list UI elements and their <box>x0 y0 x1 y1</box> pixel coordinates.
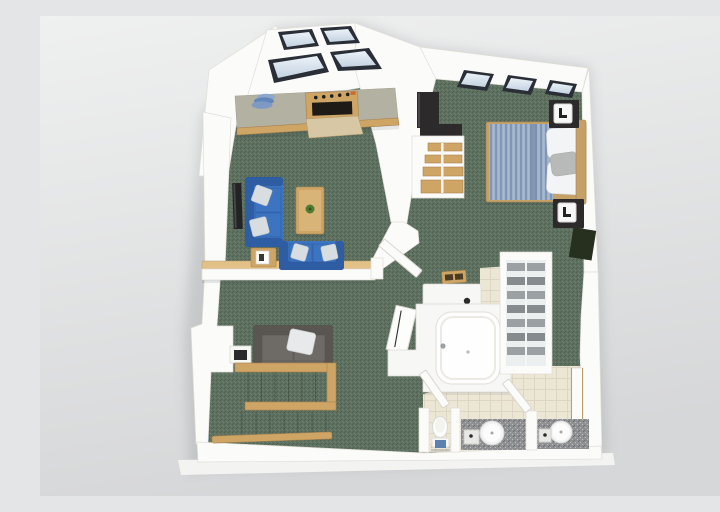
closet-shelf <box>428 143 462 151</box>
floor-plan-svg <box>40 16 720 496</box>
closet-doorway <box>571 368 583 420</box>
headboard <box>576 120 586 204</box>
bedroom-closet <box>412 136 464 198</box>
blue-sofa <box>245 177 283 247</box>
tv-screen <box>234 350 247 360</box>
pony-wall-face <box>202 269 375 280</box>
stall-wall <box>451 408 460 452</box>
pony-wall-shadow <box>202 280 375 283</box>
tub-faucet <box>440 343 445 348</box>
linen-closet <box>500 252 552 374</box>
blue-loveseat <box>279 241 344 270</box>
wall-tv <box>232 183 243 229</box>
dark-rug <box>569 227 596 260</box>
table-lamp <box>558 203 576 222</box>
table-lamp <box>554 104 572 123</box>
throw-pillow <box>321 244 339 262</box>
nightstand-upper <box>549 100 579 128</box>
sink-divider-wall <box>526 411 537 450</box>
blue-towels <box>435 440 446 448</box>
open-oven-door <box>306 116 363 138</box>
living-room <box>232 177 326 247</box>
range-stove <box>306 91 359 119</box>
floor-plan-render <box>40 16 720 496</box>
gray-loveseat <box>253 325 333 368</box>
stair-railing-inner <box>245 402 336 410</box>
tub-drain <box>466 350 469 353</box>
double-bed <box>486 120 586 205</box>
throw-pillow <box>249 216 270 237</box>
nightstand-lower <box>553 199 584 228</box>
vanity-faucet <box>464 298 470 304</box>
stall-wall <box>419 408 429 452</box>
coffee-table <box>294 187 326 238</box>
striped-duvet <box>489 124 553 200</box>
sink-left <box>461 419 526 450</box>
duvet-fold <box>530 124 537 200</box>
dark-wardrobe <box>417 92 439 128</box>
stair-railing-top <box>235 363 336 372</box>
stove-accent <box>351 92 356 95</box>
gray-pillow <box>550 151 580 177</box>
floor-vent <box>442 270 467 284</box>
end-table <box>251 248 276 267</box>
sink-right <box>537 419 589 449</box>
oven-opening <box>312 101 352 115</box>
door-post <box>371 258 383 279</box>
